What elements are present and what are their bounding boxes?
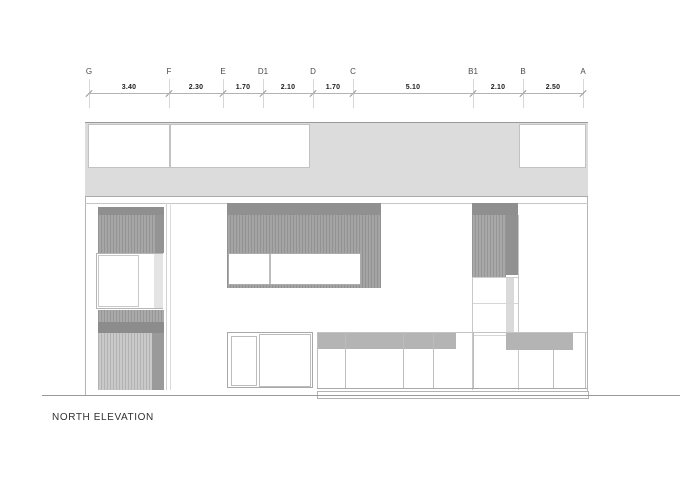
b1-pier-return — [506, 215, 518, 275]
clerestory-window-left-1 — [88, 124, 170, 168]
gf-window-pane — [98, 255, 139, 307]
lower-band-sill — [317, 388, 587, 389]
ground-line — [42, 395, 680, 396]
lower-band-head — [317, 332, 587, 333]
gf-band-mid — [98, 310, 164, 322]
clerestory-window-right — [519, 124, 586, 168]
fd-spandrel-cap — [227, 203, 381, 215]
lower-mullion-4 — [433, 332, 434, 389]
gf-spandrel-return — [155, 215, 164, 253]
grid-label-d1: D1 — [258, 67, 268, 77]
dimension-value: 1.70 — [326, 84, 340, 91]
dimension-value: 3.40 — [122, 84, 136, 91]
grid-label-b: B — [520, 67, 525, 77]
lower-mullion-3 — [403, 332, 404, 389]
gf-bay-line-1 — [166, 203, 167, 390]
b1-frame-right — [518, 215, 519, 390]
drawing-title: NORTH ELEVATION — [52, 412, 154, 423]
grid-label-f: F — [167, 67, 172, 77]
lower-mullion-2 — [345, 332, 346, 389]
sliding-door-pane-1 — [231, 336, 257, 386]
gf-band-dark — [98, 322, 164, 333]
lower-mullion-5 — [473, 332, 474, 389]
gf-lower-return — [152, 333, 164, 390]
gf-lower-hatch — [98, 333, 152, 390]
b1-panel-line-1 — [472, 277, 518, 278]
elevation-sheet: GFED1DCB1BA3.402.301.702.101.705.102.102… — [0, 0, 700, 495]
lower-mullion-7 — [585, 332, 586, 389]
grid-label-b1: B1 — [468, 67, 478, 77]
dimension-line — [89, 93, 583, 94]
gf-spandrel-hatch — [98, 215, 155, 253]
transom-panel-right — [506, 333, 573, 350]
fd-ribbon-window — [228, 253, 361, 285]
transom-panel-left — [318, 333, 456, 349]
b1-reveal-strip — [506, 277, 514, 335]
gf-spandrel-cap — [98, 207, 164, 215]
dimension-value: 2.10 — [281, 84, 295, 91]
dimension-value: 5.10 — [406, 84, 420, 91]
b1-panel-line-2 — [472, 303, 518, 304]
lower-mullion-6 — [553, 350, 554, 389]
fd-ribbon-window-mullion — [269, 254, 271, 284]
b1-pier-cap — [472, 203, 518, 215]
b1-pier-hatch — [472, 215, 506, 277]
lower-mullion-1 — [317, 332, 318, 389]
dimension-value: 2.50 — [546, 84, 560, 91]
dimension-value: 2.30 — [189, 84, 203, 91]
grid-label-c: C — [350, 67, 356, 77]
grid-label-d: D — [310, 67, 316, 77]
gf-bay-line-2 — [170, 203, 171, 390]
grid-label-g: G — [86, 67, 92, 77]
grid-label-e: E — [220, 67, 225, 77]
clerestory-window-left-2 — [170, 124, 310, 168]
sliding-door-pane-2 — [259, 334, 311, 387]
gf-window-reveal — [154, 254, 163, 308]
dimension-value: 2.10 — [491, 84, 505, 91]
grid-label-a: A — [580, 67, 585, 77]
dimension-value: 1.70 — [236, 84, 250, 91]
